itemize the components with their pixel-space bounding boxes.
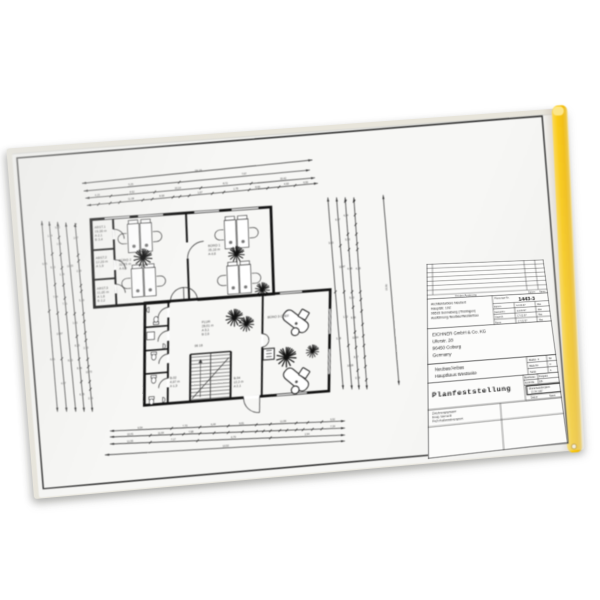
svg-text:18,19: 18,19	[195, 168, 203, 172]
svg-text:4,48: 4,48	[347, 266, 353, 270]
svg-text:1,61: 1,61	[72, 321, 78, 325]
svg-text:5,19: 5,19	[79, 298, 85, 302]
svg-text:8,92: 8,92	[129, 190, 135, 194]
svg-text:Mai: Mai	[538, 313, 543, 316]
svg-text:5,53: 5,53	[345, 238, 351, 242]
svg-text:4,23: 4,23	[95, 193, 101, 197]
svg-text:9,90: 9,90	[351, 315, 357, 319]
svg-text:Datum: Datum	[531, 396, 539, 400]
svg-text:7,67: 7,67	[242, 172, 248, 176]
svg-text:A 4,6: A 4,6	[119, 266, 127, 270]
svg-text:9,55: 9,55	[42, 262, 48, 266]
svg-text:1,16: 1,16	[59, 272, 65, 276]
svg-text:A 4,8: A 4,8	[208, 252, 216, 256]
svg-text:11,35: 11,35	[67, 264, 74, 268]
svg-text:7,70: 7,70	[182, 424, 188, 428]
svg-text:5,52: 5,52	[330, 417, 336, 421]
svg-text:18,80: 18,80	[384, 284, 388, 291]
svg-text:1,34: 1,34	[47, 233, 53, 237]
svg-text:7,17: 7,17	[171, 437, 177, 441]
svg-text:3,39: 3,39	[355, 376, 361, 380]
svg-text:7,98: 7,98	[188, 430, 194, 434]
svg-text:Mai: Mai	[538, 308, 543, 311]
svg-text:6,56: 6,56	[303, 180, 309, 184]
svg-text:A 1,9: A 1,9	[96, 264, 104, 268]
svg-text:10,42: 10,42	[280, 176, 287, 180]
svg-text:11,08: 11,08	[128, 197, 135, 201]
svg-text:2,30: 2,30	[83, 345, 89, 349]
svg-text:B 2,2: B 2,2	[97, 298, 105, 302]
svg-text:1,12: 1,12	[343, 314, 349, 318]
svg-text:10,09: 10,09	[347, 363, 354, 367]
svg-text:2,54: 2,54	[305, 432, 311, 436]
svg-text:3,18: 3,18	[336, 336, 342, 340]
svg-text:6,67: 6,67	[335, 217, 341, 221]
svg-text:A 2,1: A 2,1	[234, 384, 242, 388]
svg-text:6,61: 6,61	[50, 357, 56, 361]
svg-text:1,75: 1,75	[233, 187, 239, 191]
svg-text:11,93: 11,93	[127, 439, 134, 443]
svg-text:17.03.97: 17.03.97	[517, 314, 527, 317]
svg-text:Datum: Datum	[494, 305, 501, 308]
svg-text:10,14: 10,14	[174, 186, 181, 190]
svg-text:8,81: 8,81	[239, 421, 245, 425]
svg-text:96 18: 96 18	[195, 343, 203, 347]
svg-text:3,83: 3,83	[328, 240, 334, 244]
svg-text:Seite: Seite	[530, 370, 537, 374]
svg-text:7,04: 7,04	[53, 295, 59, 299]
svg-text:B 2,6: B 2,6	[202, 332, 210, 336]
svg-text:6,79: 6,79	[231, 435, 237, 439]
svg-text:6,35: 6,35	[79, 392, 85, 396]
svg-text:4,60: 4,60	[284, 182, 290, 186]
svg-text:4,29: 4,29	[356, 266, 362, 270]
svg-text:2,67: 2,67	[73, 236, 79, 240]
svg-text:B 3,4: B 3,4	[95, 237, 103, 241]
svg-text:8,23: 8,23	[75, 343, 81, 347]
svg-text:1,07: 1,07	[197, 190, 203, 194]
svg-text:8,23: 8,23	[68, 358, 74, 362]
svg-text:8,77: 8,77	[354, 355, 360, 359]
svg-text:10,41: 10,41	[127, 432, 134, 436]
svg-text:2,31: 2,31	[88, 396, 94, 400]
svg-text:7,34: 7,34	[330, 424, 336, 428]
svg-text:4,14: 4,14	[343, 213, 349, 217]
svg-text:6,44: 6,44	[211, 422, 217, 426]
svg-text:11,69: 11,69	[280, 419, 287, 423]
svg-text:9,83: 9,83	[55, 225, 61, 229]
svg-text:2,19: 2,19	[76, 269, 82, 273]
svg-text:8,96: 8,96	[77, 366, 83, 370]
svg-text:8,72: 8,72	[223, 181, 229, 185]
svg-text:10,87: 10,87	[56, 332, 63, 336]
svg-text:12.03.97: 12.03.97	[516, 304, 526, 307]
svg-text:11,47: 11,47	[339, 264, 346, 268]
svg-text:7,31: 7,31	[62, 302, 68, 306]
svg-text:4,67: 4,67	[61, 381, 67, 385]
svg-text:11,64: 11,64	[158, 431, 165, 435]
svg-text:A 1,3: A 1,3	[170, 384, 178, 388]
svg-text:10,73: 10,73	[86, 370, 93, 374]
svg-text:10,92: 10,92	[222, 443, 229, 447]
svg-text:14.03.97: 14.03.97	[517, 309, 527, 312]
svg-text:9,73: 9,73	[50, 265, 56, 269]
svg-text:Mai: Mai	[539, 318, 544, 321]
svg-text:Norm: Norm	[495, 321, 501, 324]
svg-text:Mai: Mai	[537, 303, 542, 306]
svg-text:11,54: 11,54	[352, 335, 359, 339]
svg-text:8,68: 8,68	[159, 194, 165, 198]
svg-text:1443-3: 1443-3	[518, 296, 535, 302]
svg-text:5,43: 5,43	[349, 295, 355, 299]
svg-text:5,25: 5,25	[128, 182, 134, 186]
svg-text:1,01: 1,01	[56, 242, 62, 246]
svg-text:9,54: 9,54	[137, 425, 143, 429]
svg-text:8,06: 8,06	[255, 185, 261, 189]
svg-text:Geprüft: Geprüft	[495, 316, 504, 319]
